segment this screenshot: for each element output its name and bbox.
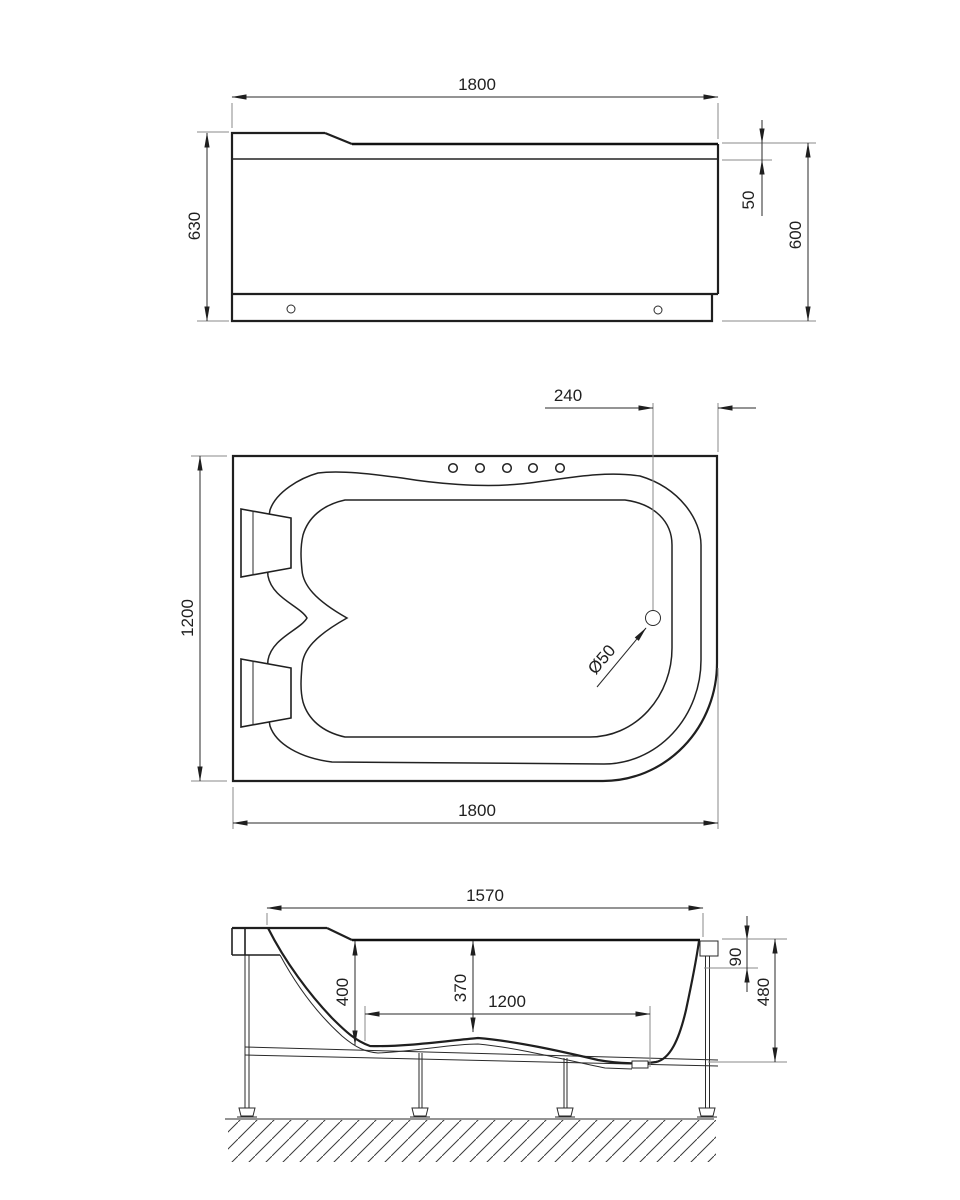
technical-drawing-canvas: 1800 630 50 600 [0, 0, 960, 1200]
headrest-bottom-pad [241, 659, 291, 727]
dim-label-drain-diameter: Ø50 [584, 641, 619, 678]
dim-label-front-length: 1800 [458, 75, 496, 94]
dim-label-front-height: 630 [185, 212, 204, 240]
side-right-deck-edge [700, 941, 718, 956]
jet-hole [529, 464, 538, 473]
dim-label-rim-drop: 90 [726, 948, 745, 967]
dim-label-front-skirt: 600 [786, 221, 805, 249]
drawing-page: 1800 630 50 600 [0, 0, 960, 1200]
panel-hole-left [287, 305, 295, 313]
dim-label-side-rim-length: 1570 [466, 886, 504, 905]
drain-hole [646, 611, 661, 626]
frame-rail-top [245, 1047, 718, 1060]
headrest-top [241, 509, 291, 577]
jet-hole [556, 464, 565, 473]
plan-basin-contour [301, 500, 672, 737]
jet-hole [503, 464, 512, 473]
plan-view: Ø50 240 1200 1800 [178, 386, 756, 829]
ground-hatch [228, 1120, 716, 1162]
leg-foot [410, 1108, 430, 1117]
drain-waste-fitting [632, 1061, 648, 1068]
dim-label-plan-length: 1800 [458, 801, 496, 820]
frame-legs [237, 955, 717, 1117]
panel-hole-right [654, 306, 662, 314]
side-view: 1570 400 370 1200 90 480 [225, 886, 787, 1162]
dim-label-frame-height: 480 [754, 978, 773, 1006]
dim-label-depth-center: 370 [451, 974, 470, 1002]
jet-hole [449, 464, 458, 473]
tub-shell-inner-line [280, 955, 632, 1069]
dim-label-depth-rear: 400 [333, 978, 352, 1006]
plan-rim-contour [267, 472, 701, 764]
headrest-bottom [241, 659, 291, 727]
leg-foot [555, 1108, 575, 1117]
leg-foot [697, 1108, 717, 1117]
front-top-slope [325, 133, 352, 144]
side-top-slope [327, 928, 352, 940]
leg-foot [237, 1108, 257, 1117]
front-tub-outline [232, 133, 718, 321]
dim-label-drain-offset: 240 [554, 386, 582, 405]
front-view: 1800 630 50 600 [185, 75, 816, 321]
dim-label-floor-length: 1200 [488, 992, 526, 1011]
dim-label-front-rim: 50 [739, 191, 758, 210]
dim-label-plan-width: 1200 [178, 599, 197, 637]
headrest-top-pad [241, 509, 291, 577]
jet-hole [476, 464, 485, 473]
